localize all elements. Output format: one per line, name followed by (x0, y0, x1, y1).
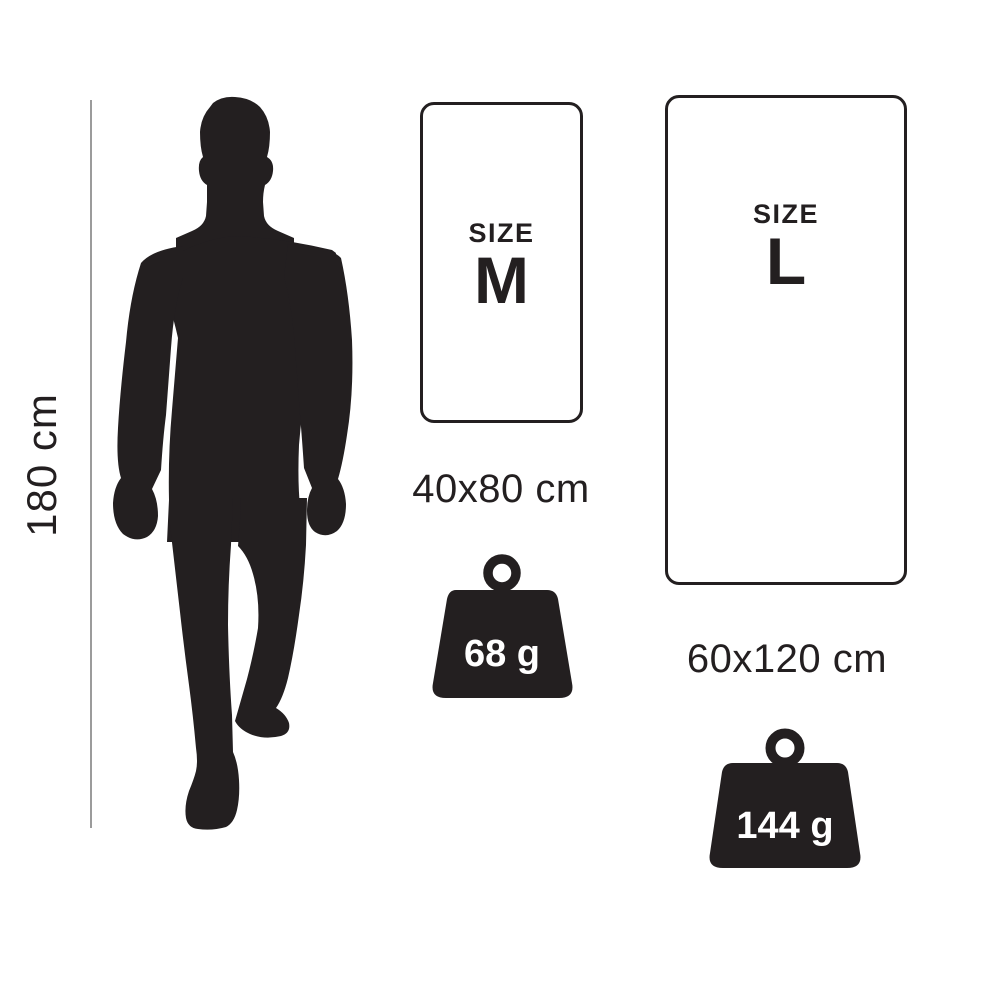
size-card-m: SIZE M (420, 102, 583, 423)
size-letter-m: M (423, 249, 580, 311)
size-card-l-labels: SIZE L (668, 198, 904, 292)
dimensions-label-l: 60x120 cm (677, 637, 897, 682)
height-measure-line (90, 100, 92, 828)
size-card-m-labels: SIZE M (423, 217, 580, 311)
dimensions-label-m: 40x80 cm (391, 467, 611, 512)
weight-icon-m: 68 g (425, 550, 580, 702)
weight-value-l: 144 g (736, 805, 833, 847)
weight-ring-icon (488, 559, 516, 587)
size-letter-l: L (668, 230, 904, 292)
weight-value-m: 68 g (464, 633, 540, 675)
weight-icon-l: 144 g (700, 725, 870, 875)
man-silhouette-icon (100, 90, 360, 835)
height-label: 180 cm (18, 393, 66, 537)
size-card-l: SIZE L (665, 95, 907, 585)
weight-ring-icon (771, 734, 800, 763)
size-comparison-diagram: 180 cm SIZE M SIZE L 40x80 cm 60x120 cm (0, 0, 1000, 1000)
